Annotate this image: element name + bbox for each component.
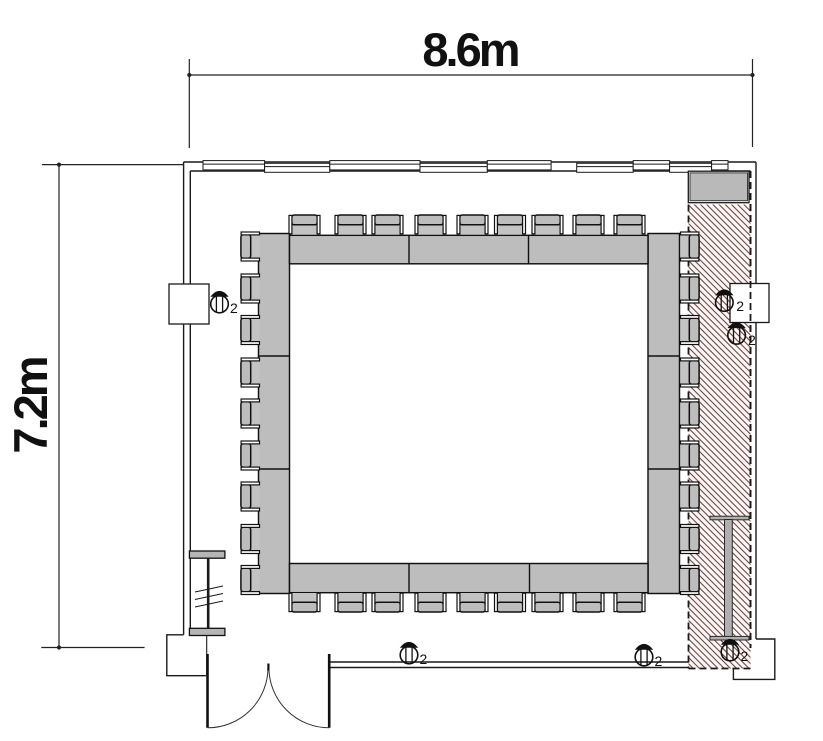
svg-text:2: 2	[736, 298, 744, 314]
svg-text:2: 2	[741, 648, 749, 664]
svg-text:2: 2	[420, 651, 428, 667]
svg-text:2: 2	[655, 653, 663, 669]
svg-text:2: 2	[748, 332, 756, 348]
svg-text:8.6m: 8.6m	[422, 23, 517, 76]
svg-text:2: 2	[230, 300, 238, 316]
svg-text:7.2m: 7.2m	[4, 358, 57, 453]
